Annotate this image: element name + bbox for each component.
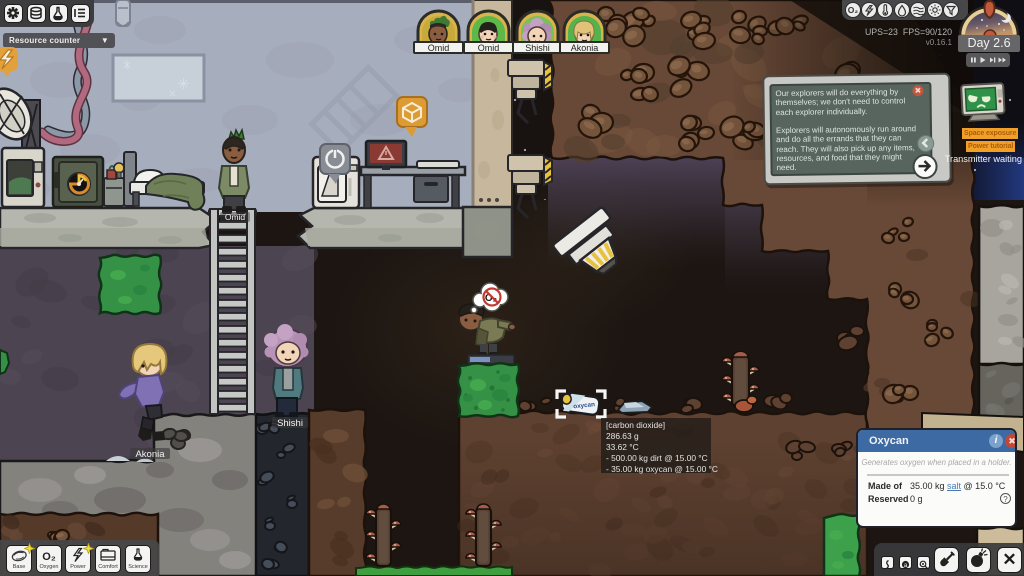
- svg-text:Omid: Omid: [225, 212, 246, 222]
- svg-text:O₂: O₂: [848, 5, 859, 15]
- svg-text:Akonia: Akonia: [135, 449, 165, 460]
- svg-text:O₂: O₂: [42, 551, 56, 563]
- svg-text:Shishi: Shishi: [277, 418, 303, 429]
